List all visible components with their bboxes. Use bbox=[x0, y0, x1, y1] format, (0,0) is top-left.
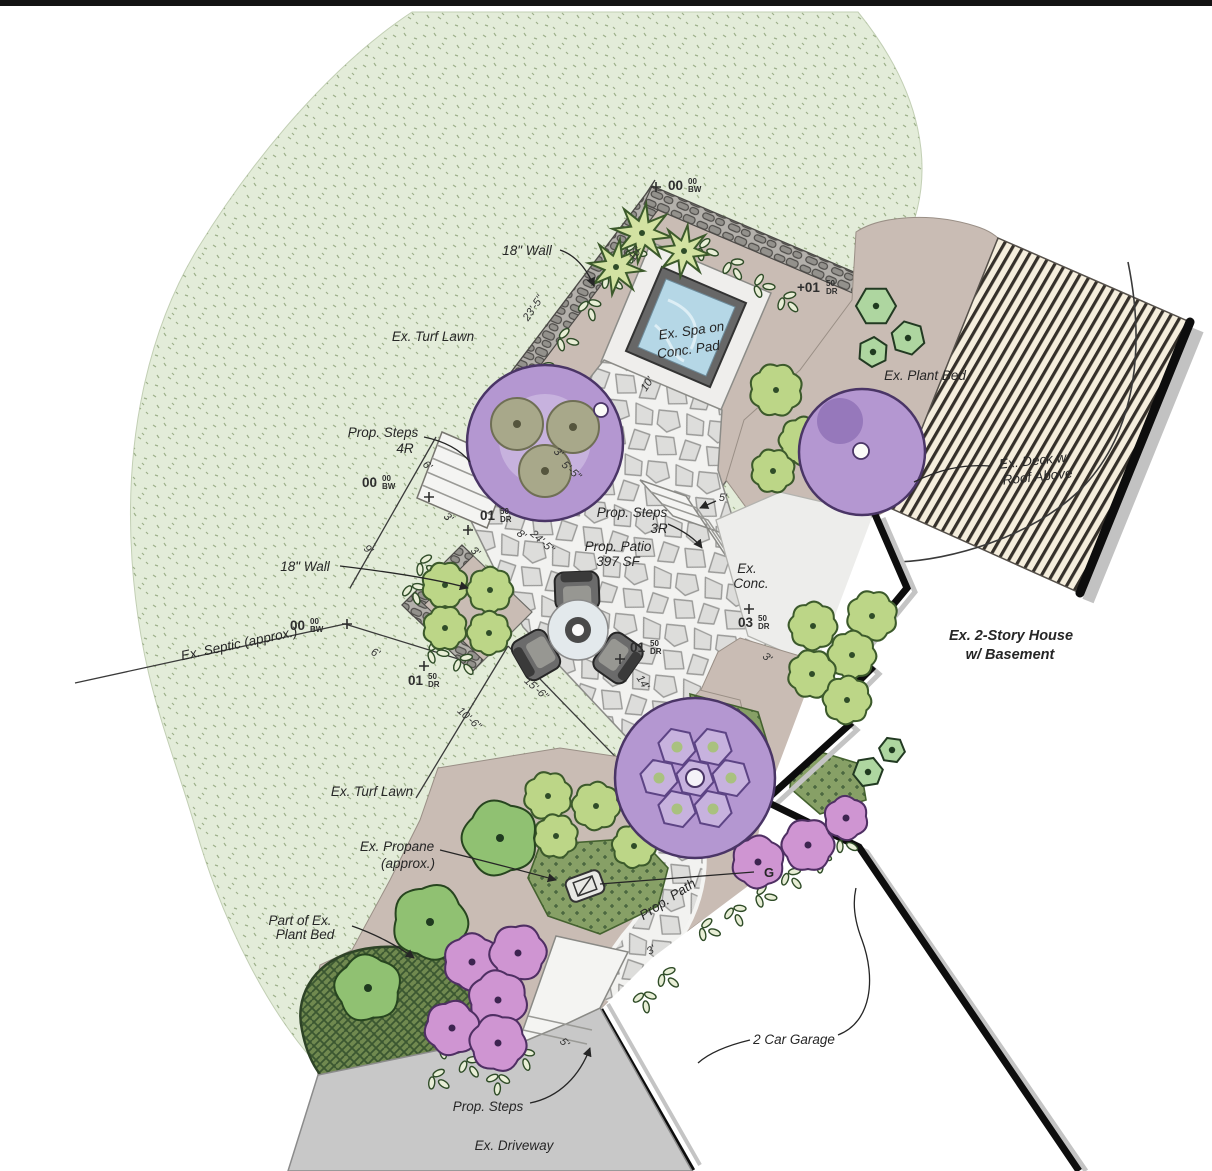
elev-conc-suffix: DR bbox=[758, 622, 770, 631]
plant-center-dot bbox=[905, 335, 911, 341]
steps-bottom-label: Prop. Steps bbox=[453, 1099, 524, 1114]
plant-center-dot bbox=[639, 230, 645, 236]
plant-center-dot bbox=[844, 697, 850, 703]
elev-upper-right: +0150DR bbox=[797, 279, 838, 296]
elev-left-upper-value: 00 bbox=[362, 475, 377, 490]
wall-label-top: 18" Wall bbox=[502, 243, 553, 258]
elev-septic-suffix: BW bbox=[310, 625, 324, 634]
purple-tree-trunk bbox=[686, 769, 704, 787]
sheet-border-top bbox=[0, 0, 1212, 6]
plant-center-dot bbox=[515, 950, 522, 957]
elev-top-suffix: BW bbox=[688, 185, 702, 194]
plant-center-dot bbox=[672, 804, 683, 815]
house-label-1: Ex. 2-Story House bbox=[949, 628, 1073, 644]
plant-center-dot bbox=[873, 303, 879, 309]
plant-center-dot bbox=[843, 815, 850, 822]
wall-label-left: 18" Wall bbox=[280, 559, 331, 574]
patio-label-1: Prop. Patio bbox=[585, 539, 652, 554]
steps3r-label-2: 3R bbox=[650, 521, 668, 536]
house-label-2: w/ Basement bbox=[966, 647, 1056, 663]
plant-center-dot bbox=[495, 1040, 502, 1047]
plant-center-dot bbox=[869, 613, 875, 619]
plant-center-dot bbox=[865, 769, 871, 775]
elev-conc-value: 03 bbox=[738, 615, 754, 630]
garage-label: 2 Car Garage bbox=[752, 1032, 835, 1047]
gas-label: G bbox=[764, 865, 774, 880]
steps4r-label-2: 4R bbox=[396, 441, 414, 456]
plant-center-dot bbox=[809, 671, 815, 677]
turf-label-upper: Ex. Turf Lawn bbox=[392, 329, 474, 344]
plant-center-dot bbox=[569, 423, 577, 431]
elev-patio-value: 01 bbox=[630, 640, 646, 655]
plant-center-dot bbox=[681, 248, 687, 254]
part-bed-label-1: Part of Ex. bbox=[268, 913, 331, 928]
plant-center-dot bbox=[672, 742, 683, 753]
plant-center-dot bbox=[631, 843, 637, 849]
plant-center-dot bbox=[496, 834, 504, 842]
plant-center-dot bbox=[513, 420, 521, 428]
plant-center-dot bbox=[849, 652, 855, 658]
conc-label-1: Ex. bbox=[737, 561, 757, 576]
driveway-label: Ex. Driveway bbox=[475, 1138, 555, 1153]
purple-tree-trunk bbox=[853, 443, 869, 459]
steps4r-label-1: Prop. Steps bbox=[348, 425, 419, 440]
plant-center-dot bbox=[613, 264, 619, 270]
turf-label-lower: Ex. Turf Lawn bbox=[331, 784, 413, 799]
plant-center-dot bbox=[770, 468, 776, 474]
plant-center-dot bbox=[708, 804, 719, 815]
plant-center-dot bbox=[726, 773, 737, 784]
plant-center-dot bbox=[449, 1025, 456, 1032]
plant-center-dot bbox=[486, 630, 492, 636]
conc-label-2: Conc. bbox=[733, 576, 768, 591]
plant-center-dot bbox=[553, 833, 559, 839]
landscape-plan-sheet: 18" WallEx. Turf LawnEx. Spa onConc. Pad… bbox=[0, 0, 1212, 1171]
plant-center-dot bbox=[708, 742, 719, 753]
plant-center-dot bbox=[870, 349, 876, 355]
elev-upper-right-suffix: DR bbox=[826, 287, 838, 296]
elev-steps4r-suffix: DR bbox=[500, 515, 512, 524]
elev-septic-value: 00 bbox=[290, 618, 305, 633]
elev-left-upper-suffix: BW bbox=[382, 482, 396, 491]
plant-center-dot bbox=[654, 773, 665, 784]
steps3r-label-1: Prop. Steps bbox=[597, 505, 668, 520]
dim-5ft-steps3r: 5' bbox=[719, 492, 728, 504]
plant-center-dot bbox=[889, 747, 895, 753]
plant-center-dot bbox=[487, 587, 493, 593]
propane-label-1: Ex. Propane bbox=[360, 839, 434, 854]
plant-center-dot bbox=[805, 842, 812, 849]
plant-center-dot bbox=[755, 859, 762, 866]
landscape-plan-drawing: 18" WallEx. Turf LawnEx. Spa onConc. Pad… bbox=[0, 0, 1212, 1171]
elev-lower-left-value: 01 bbox=[408, 673, 424, 688]
plant-center-dot bbox=[773, 387, 779, 393]
propane-label-2: (approx.) bbox=[381, 856, 435, 871]
part-bed-label-2: Plant Bed bbox=[276, 927, 335, 942]
plant-center-dot bbox=[364, 984, 372, 992]
plant-center-dot bbox=[810, 623, 816, 629]
plant-center-dot bbox=[469, 959, 476, 966]
plant-center-dot bbox=[593, 803, 599, 809]
plant-center-dot bbox=[495, 997, 502, 1004]
elev-steps4r-value: 01 bbox=[480, 508, 496, 523]
patio-label-2: 397 SF bbox=[596, 554, 640, 569]
plant-bed-label-right: Ex. Plant Bed bbox=[884, 368, 966, 383]
plant-center-dot bbox=[442, 625, 448, 631]
elev-top-value: 00 bbox=[668, 178, 683, 193]
small-accent-circle bbox=[594, 403, 608, 417]
elev-lower-left-suffix: DR bbox=[428, 680, 440, 689]
elev-upper-right-value: +01 bbox=[797, 280, 820, 295]
plant-center-dot bbox=[541, 467, 549, 475]
plant-center-dot bbox=[545, 793, 551, 799]
elev-patio-suffix: DR bbox=[650, 647, 662, 656]
purple-tree-shade-blob bbox=[817, 398, 863, 444]
plant-center-dot bbox=[426, 918, 434, 926]
